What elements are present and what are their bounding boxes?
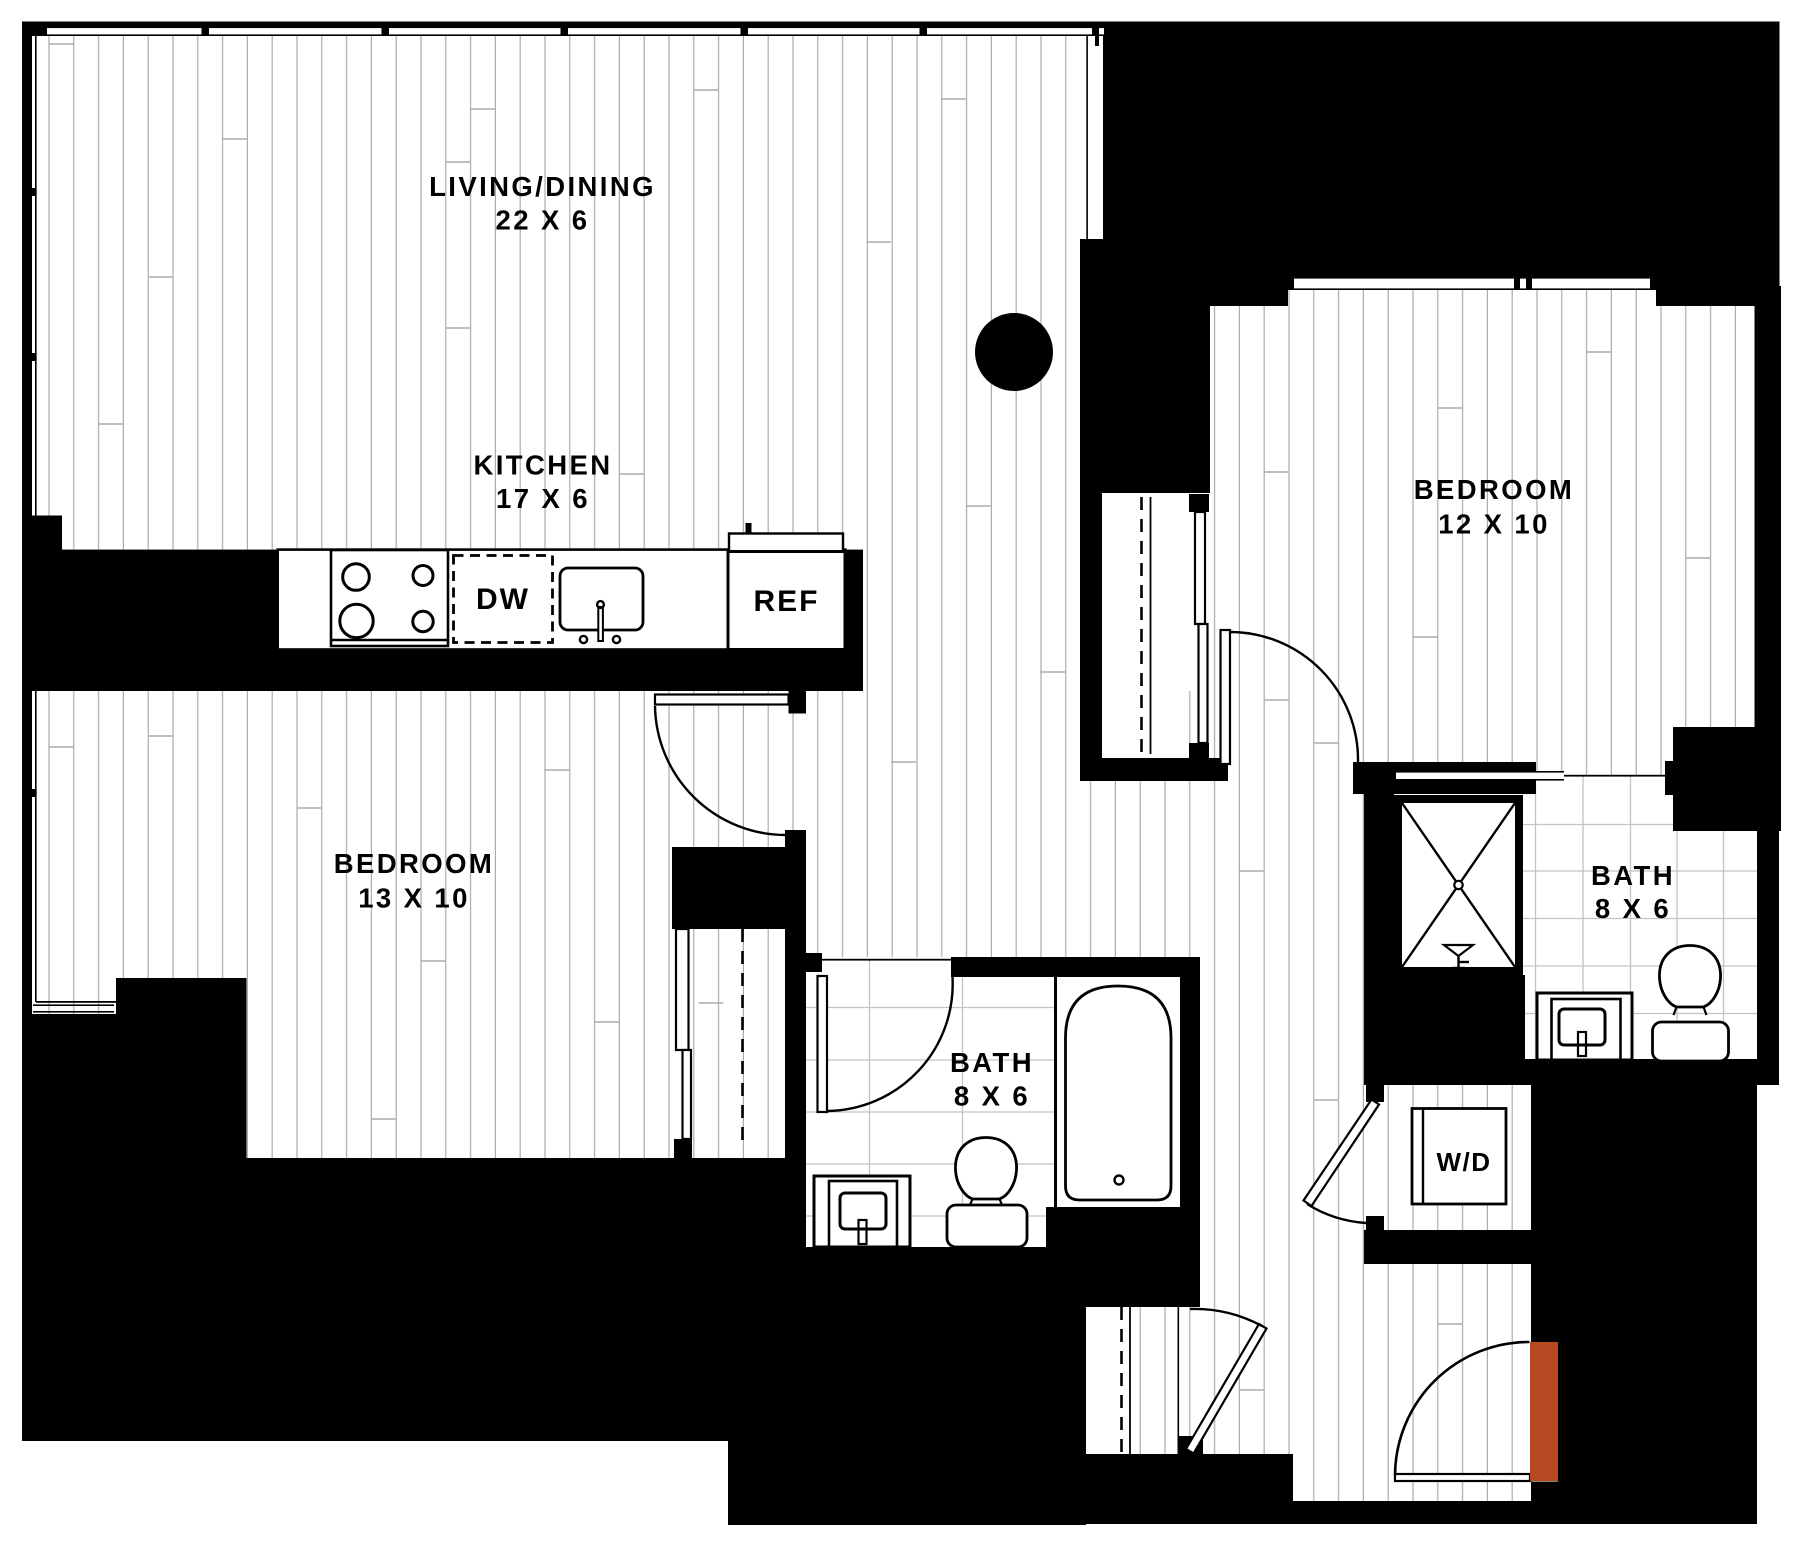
svg-text:13 X 10: 13 X 10: [358, 883, 470, 914]
svg-text:12 X 10: 12 X 10: [1438, 509, 1550, 540]
svg-text:BATH: BATH: [950, 1047, 1034, 1078]
svg-text:BATH: BATH: [1591, 860, 1675, 891]
svg-text:REF: REF: [754, 585, 820, 618]
svg-text:22 X 6: 22 X 6: [496, 205, 590, 236]
svg-text:17 X 6: 17 X 6: [496, 483, 590, 514]
svg-text:BEDROOM: BEDROOM: [1414, 474, 1574, 505]
svg-text:W/D: W/D: [1436, 1147, 1491, 1177]
svg-text:DW: DW: [476, 583, 530, 616]
svg-text:8 X 6: 8 X 6: [954, 1081, 1030, 1112]
svg-text:LIVING/DINING: LIVING/DINING: [429, 171, 656, 202]
svg-text:KITCHEN: KITCHEN: [473, 450, 612, 481]
svg-text:8 X 6: 8 X 6: [1595, 893, 1671, 924]
svg-text:BEDROOM: BEDROOM: [334, 848, 494, 879]
